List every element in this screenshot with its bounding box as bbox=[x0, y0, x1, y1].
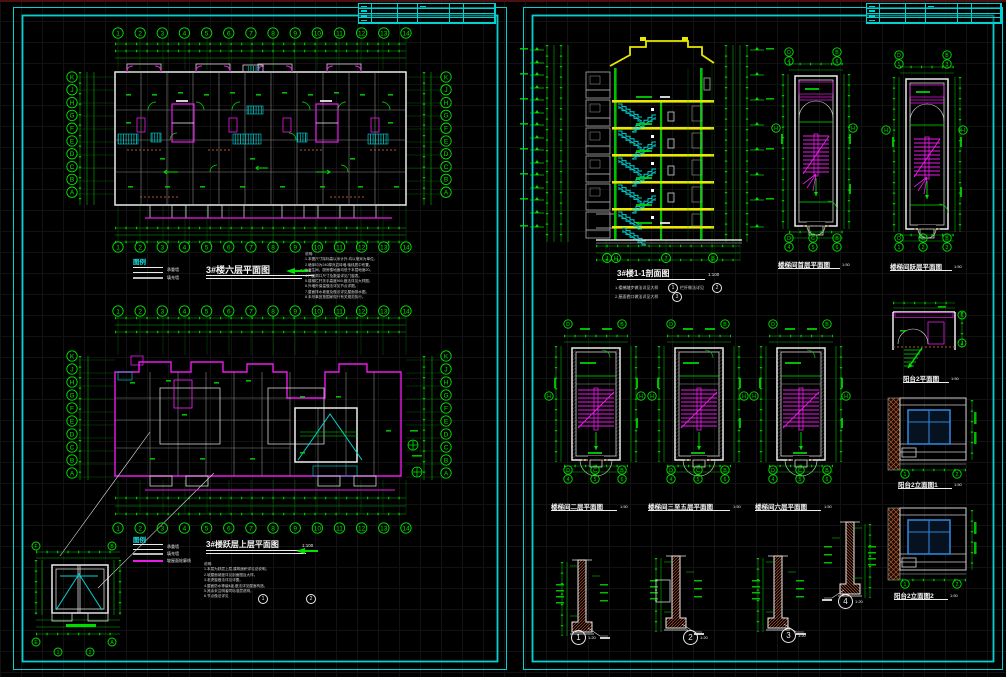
cad-canvas: 12345678910111213141234567891011121314KJ… bbox=[0, 0, 1006, 677]
right-sheet-drawing-area[interactable] bbox=[523, 7, 1002, 669]
left-sheet-drawing-area[interactable] bbox=[13, 7, 506, 669]
